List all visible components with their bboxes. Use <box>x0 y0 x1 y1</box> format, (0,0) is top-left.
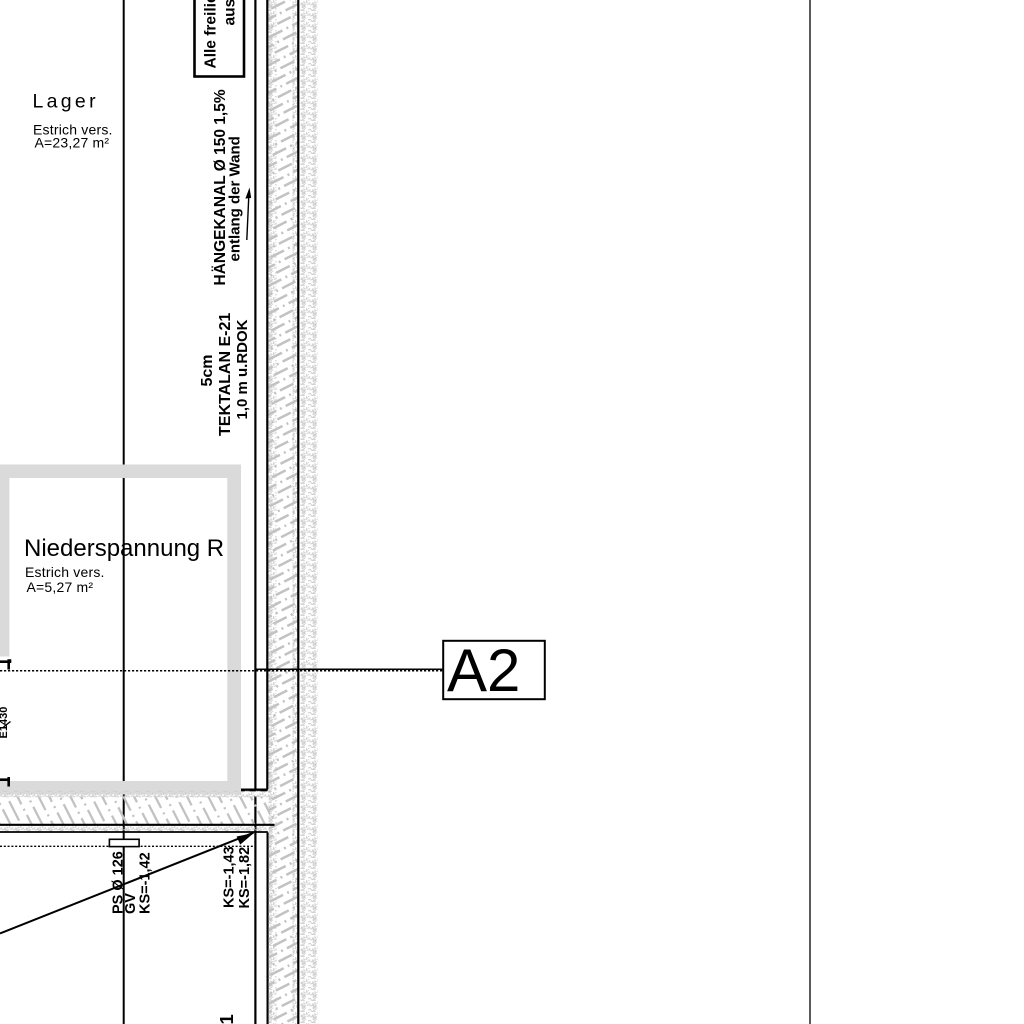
svg-text:Lager: Lager <box>33 91 99 113</box>
svg-text:Alle freilie: Alle freilie <box>202 0 219 69</box>
svg-text:A2: A2 <box>447 637 520 704</box>
svg-text:A=23,27 m²: A=23,27 m² <box>35 135 110 151</box>
svg-text:KS=-1,43: KS=-1,43 <box>222 846 238 908</box>
svg-text:KS=-1,42: KS=-1,42 <box>137 852 153 914</box>
svg-text:A=5,27 m²: A=5,27 m² <box>27 579 94 595</box>
svg-text:aus: aus <box>222 0 239 26</box>
svg-text:5cm: 5cm <box>199 354 216 386</box>
svg-text:1,0 m u.RDOK: 1,0 m u.RDOK <box>234 319 251 419</box>
svg-text:Estrich vers.: Estrich vers. <box>25 564 105 580</box>
svg-text:1: 1 <box>216 1014 237 1024</box>
svg-text:TEKTALAN E-21: TEKTALAN E-21 <box>217 313 234 436</box>
svg-text:KS=-1,82: KS=-1,82 <box>237 847 253 909</box>
svg-text:Niederspannung R: Niederspannung R <box>24 535 224 562</box>
svg-text:entlang der Wand: entlang der Wand <box>227 136 244 261</box>
